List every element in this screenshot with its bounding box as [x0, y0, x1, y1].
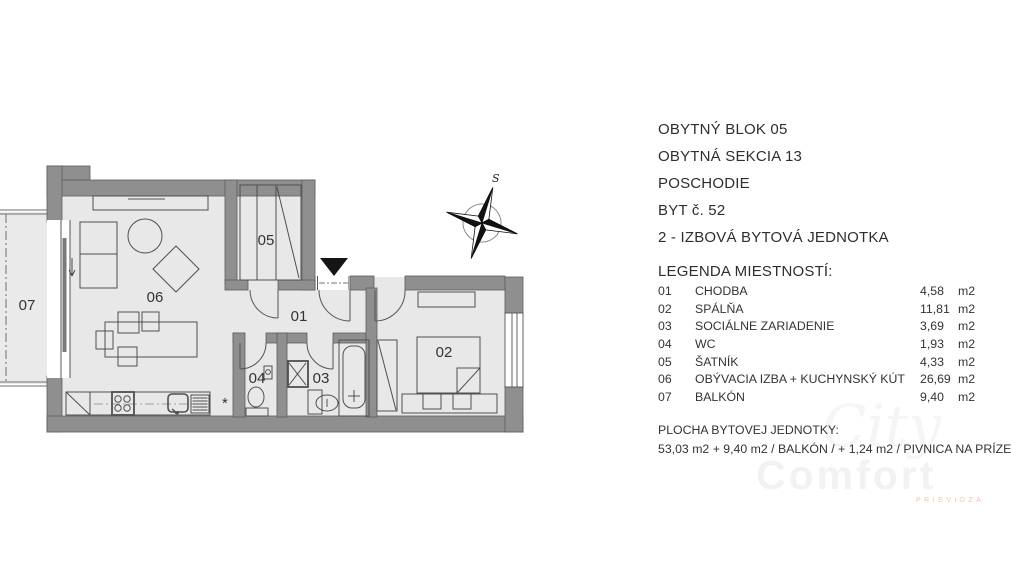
total-area-title: PLOCHA BYTOVEJ JEDNOTKY:: [658, 421, 1011, 440]
type-line: 2 - IZBOVÁ BYTOVÁ JEDNOTKA: [658, 224, 889, 251]
room-name: SPÁLŇA: [695, 301, 744, 319]
room-name: SOCIÁLNE ZARIADENIE: [695, 318, 834, 336]
fridge-marker: *: [222, 395, 228, 412]
room-unit: m2: [958, 283, 975, 301]
room-label-01: 01: [291, 308, 308, 325]
bedroom-window: [505, 313, 523, 387]
room-name: WC: [695, 336, 716, 354]
section-line: OBYTNÁ SEKCIA 13: [658, 143, 889, 170]
watermark-logo: Comfort: [756, 452, 936, 499]
room-number: 02: [658, 301, 672, 319]
floor-plan: *: [0, 0, 645, 570]
room-label-06: 06: [147, 289, 164, 306]
room-area: 11,81: [920, 301, 950, 319]
room-unit: m2: [958, 336, 975, 354]
room-area: 3,69: [920, 318, 944, 336]
legend-row: 06 OBÝVACIA IZBA + KUCHYNSKÝ KÚT 26,69 m…: [658, 371, 1011, 389]
room-legend: 01 CHODBA 4,58 m2 02 SPÁLŇA 11,81 m2 03 …: [658, 283, 1011, 407]
legend-row: 02 SPÁLŇA 11,81 m2: [658, 301, 1011, 319]
room-name: ŠATNÍK: [695, 354, 739, 372]
watermark-subtext: PRIEVIDZA: [916, 497, 984, 504]
total-area-value: 53,03 m2 + 9,40 m2 / BALKÓN / + 1,24 m2 …: [658, 440, 1011, 459]
room-number: 04: [658, 336, 672, 354]
room-name: CHODBA: [695, 283, 748, 301]
legend-row: 04 WC 1,93 m2: [658, 336, 1011, 354]
compass-north-label: S: [492, 172, 500, 185]
block-line: OBYTNÝ BLOK 05: [658, 116, 889, 143]
room-label-02: 02: [436, 344, 453, 361]
room-area: 26,69: [920, 371, 951, 389]
legend-row: 01 CHODBA 4,58 m2: [658, 283, 1011, 301]
room-number: 03: [658, 318, 672, 336]
room-unit: m2: [958, 318, 975, 336]
room-unit: m2: [958, 389, 975, 407]
room-unit: m2: [958, 301, 975, 319]
legend-row: 07 BALKÓN 9,40 m2: [658, 389, 1011, 407]
entrance-door-opening: [316, 276, 350, 290]
room-number: 07: [658, 389, 672, 407]
floor-line: POSCHODIE: [658, 170, 889, 197]
total-area-block: PLOCHA BYTOVEJ JEDNOTKY: 53,03 m2 + 9,40…: [658, 421, 1011, 459]
room-number: 01: [658, 283, 672, 301]
unit-info-block: OBYTNÝ BLOK 05 OBYTNÁ SEKCIA 13 POSCHODI…: [658, 116, 889, 251]
compass-icon: S: [436, 172, 528, 269]
room-label-07: 07: [19, 297, 36, 314]
entrance-marker: [320, 258, 348, 276]
dishwasher: [191, 395, 209, 413]
room-label-05: 05: [258, 232, 275, 249]
room-area: 4,33: [920, 354, 944, 372]
room-unit: m2: [958, 354, 975, 372]
room-name: OBÝVACIA IZBA + KUCHYNSKÝ KÚT: [695, 371, 905, 389]
sliding-panel: [63, 238, 67, 352]
legend-row: 03 SOCIÁLNE ZARIADENIE 3,69 m2: [658, 318, 1011, 336]
room-area: 4,58: [920, 283, 944, 301]
room-label-03: 03: [313, 370, 330, 387]
room-number: 06: [658, 371, 672, 389]
room-unit: m2: [958, 371, 975, 389]
floorplan-page: *: [0, 0, 1011, 570]
room-name: BALKÓN: [695, 389, 745, 407]
room-label-04: 04: [249, 370, 266, 387]
flat-line: BYT č. 52: [658, 197, 889, 224]
room-number: 05: [658, 354, 672, 372]
legend-row: 05 ŠATNÍK 4,33 m2: [658, 354, 1011, 372]
room-area: 9,40: [920, 389, 944, 407]
legend-title: LEGENDA MIESTNOSTÍ:: [658, 263, 833, 280]
room-area: 1,93: [920, 336, 944, 354]
